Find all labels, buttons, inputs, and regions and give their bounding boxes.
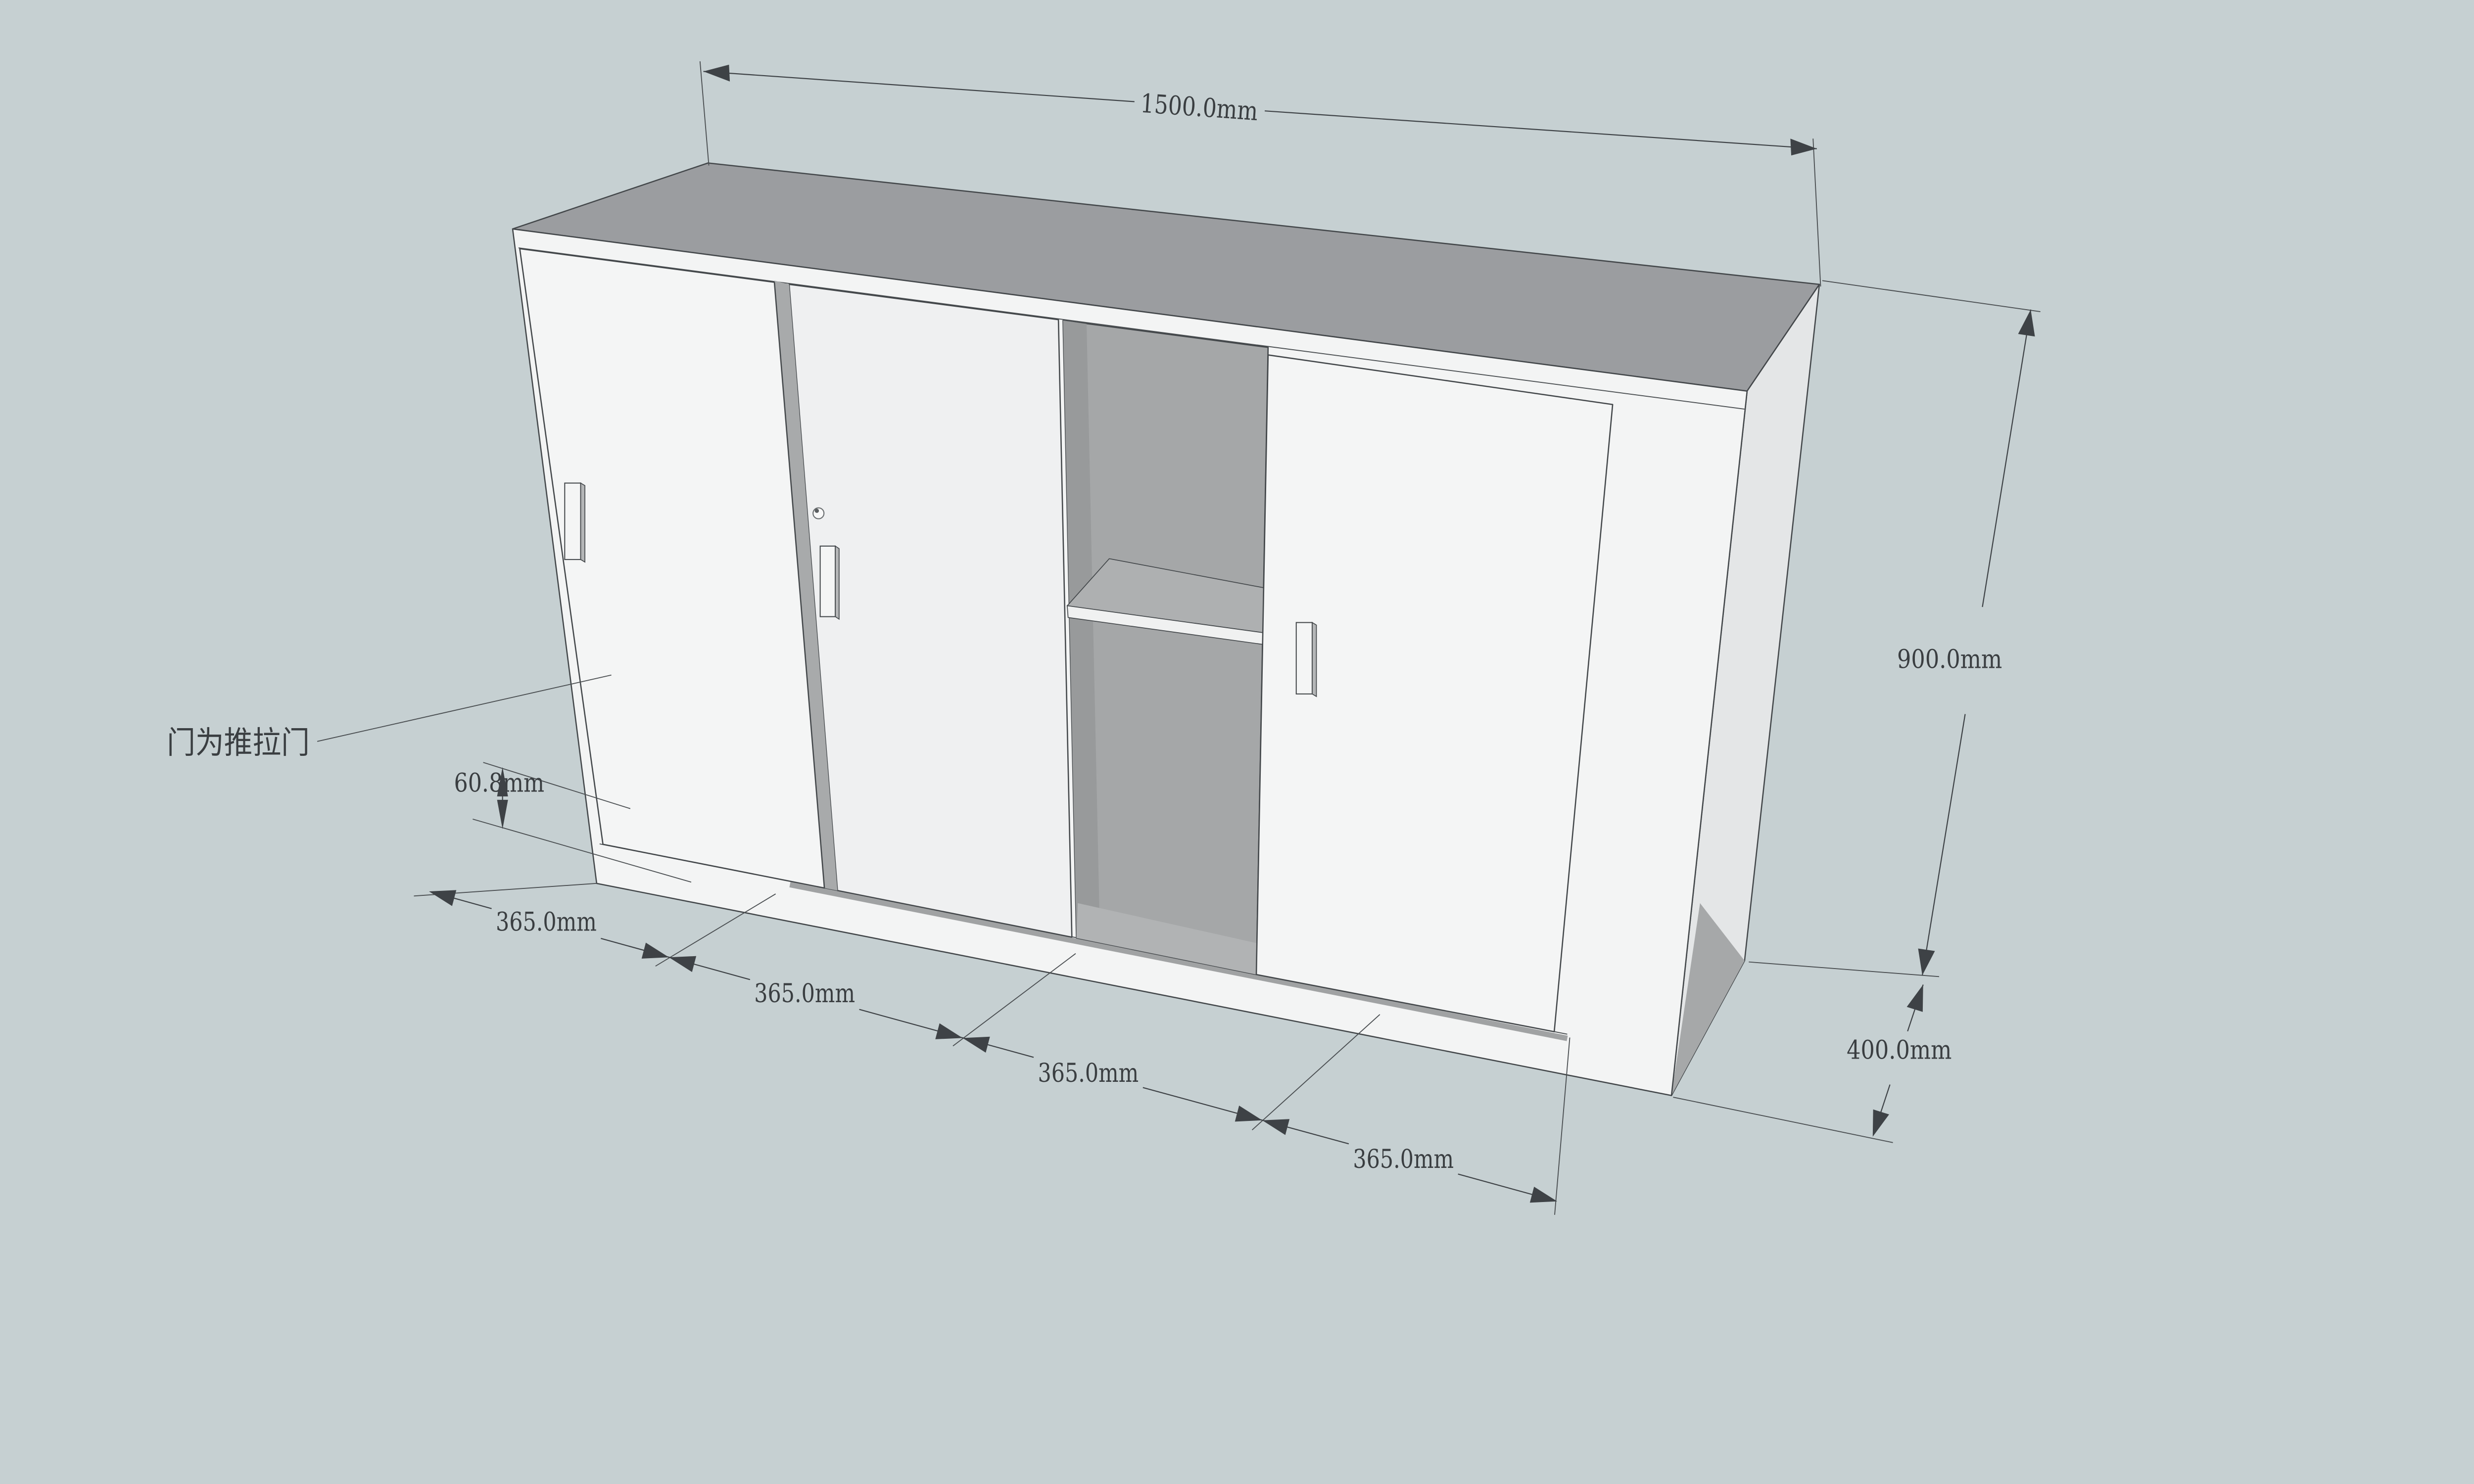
door-2-handle xyxy=(820,546,839,619)
door-3-handle xyxy=(1296,622,1317,696)
section-dimension-label-1: 365.0mm xyxy=(496,907,597,937)
section-dimension-label-2: 365.0mm xyxy=(754,978,855,1009)
section-dimension-label-4: 365.0mm xyxy=(1353,1144,1454,1174)
cad-canvas: 1500.0mm 900.0mm 400.0mm xyxy=(0,0,2474,1260)
open-shelf-compartment xyxy=(1063,321,1268,974)
height-dimension-label: 900.0mm xyxy=(1897,645,2002,675)
section-dimension-label-3: 365.0mm xyxy=(1038,1058,1139,1088)
door-2-lock-keyhole xyxy=(813,508,824,519)
door-2-lock-pin xyxy=(815,509,819,512)
door-note-label: 门为推拉门 xyxy=(167,725,310,761)
depth-dimension-label: 400.0mm xyxy=(1847,1035,1951,1065)
door-1-handle xyxy=(565,483,585,562)
drawing-viewport: 1500.0mm 900.0mm 400.0mm xyxy=(0,0,2474,1260)
